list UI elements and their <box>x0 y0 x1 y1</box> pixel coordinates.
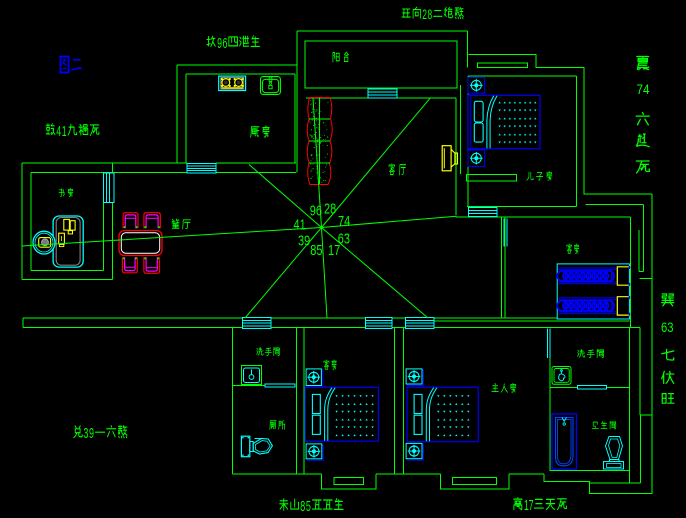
svg-text:3: 3 <box>83 426 88 442</box>
svg-text:6: 6 <box>223 36 228 52</box>
svg-text:63: 63 <box>661 319 674 335</box>
svg-text:17: 17 <box>328 242 340 259</box>
svg-text:5: 5 <box>306 499 311 515</box>
svg-text:8: 8 <box>428 7 433 22</box>
svg-text:74: 74 <box>338 213 350 230</box>
svg-text:1: 1 <box>62 124 67 140</box>
svg-text:96: 96 <box>310 203 322 220</box>
svg-text:39: 39 <box>298 232 310 249</box>
svg-text:9: 9 <box>217 36 222 52</box>
svg-text:28: 28 <box>324 201 336 218</box>
svg-text:7: 7 <box>529 498 534 514</box>
svg-text:74: 74 <box>637 81 650 97</box>
svg-text:2: 2 <box>422 7 427 22</box>
svg-text:4: 4 <box>56 124 61 140</box>
svg-text:8: 8 <box>300 499 305 515</box>
svg-text:85: 85 <box>310 242 322 259</box>
svg-text:41: 41 <box>294 217 306 234</box>
svg-text:9: 9 <box>89 426 94 442</box>
